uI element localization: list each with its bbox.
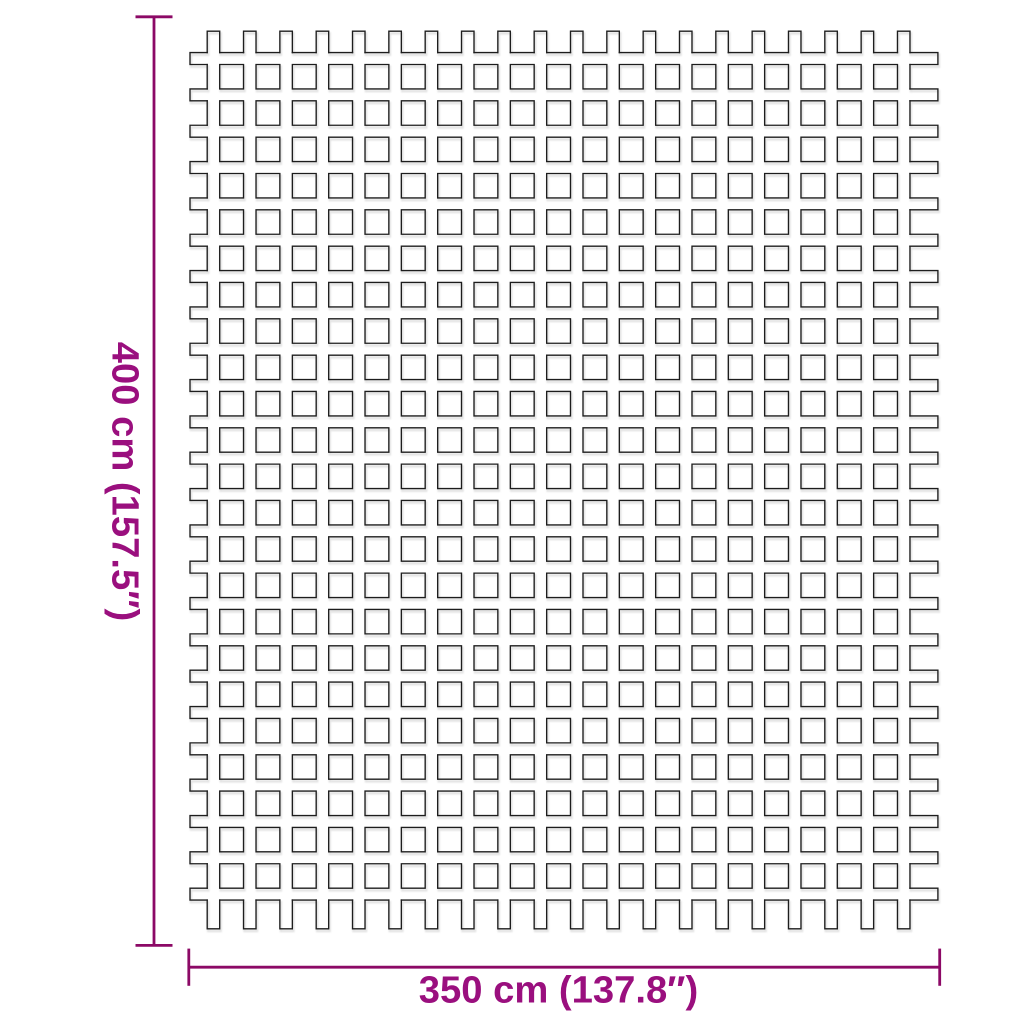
svg-text:400 cm (157.5″): 400 cm (157.5″) (103, 342, 146, 621)
svg-text:350 cm (137.8″): 350 cm (137.8″) (419, 969, 698, 1012)
